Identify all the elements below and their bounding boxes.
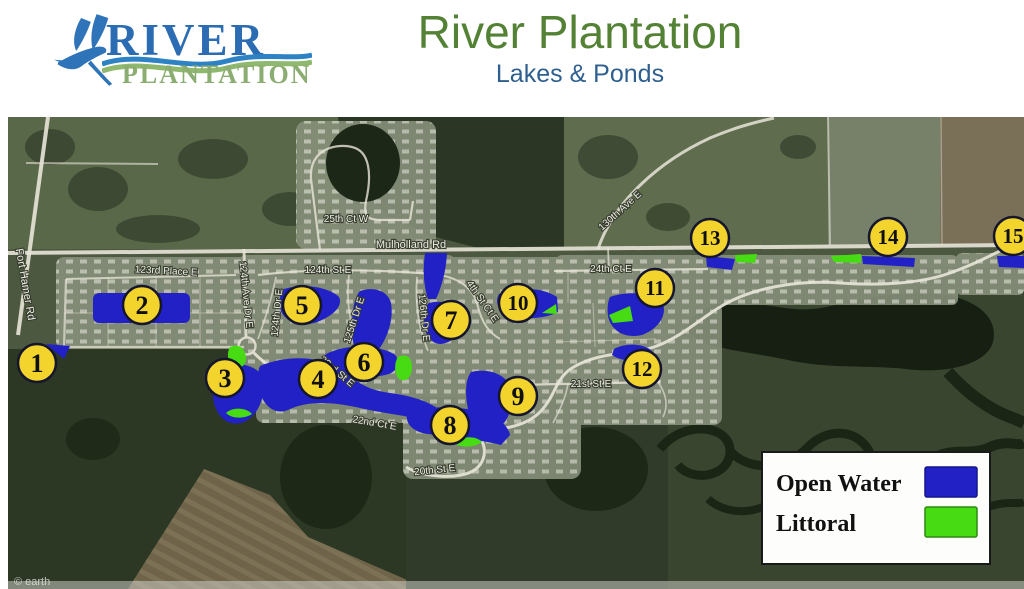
page: RIVER PLANTATION River Plantation Lakes … <box>0 0 1024 589</box>
legend-swatch-littoral <box>925 507 977 537</box>
map-bottom-edge <box>8 581 1024 589</box>
map-canvas: Fort Hamer Rd 123rd Place E 124th Ave Dr… <box>8 117 1024 589</box>
title-block: River Plantation Lakes & Ponds <box>330 6 830 89</box>
marker-number-11: 11 <box>645 276 665 300</box>
street-label-24th-ct-e: 24th Ct E <box>590 264 632 275</box>
map-legend: Open Water Littoral <box>762 452 990 564</box>
marker-number-15: 15 <box>1003 224 1024 248</box>
littoral-13 <box>735 254 757 263</box>
marker-number-3: 3 <box>219 364 232 393</box>
pond-southwest <box>66 418 120 460</box>
lake-15 <box>997 256 1024 268</box>
pond-25th-ct <box>326 124 400 202</box>
logo-text-plantation: PLANTATION <box>122 60 312 90</box>
marker-number-14: 14 <box>878 225 900 249</box>
legend-label-littoral: Littoral <box>776 511 856 537</box>
earth-watermark: © earth <box>14 576 50 588</box>
page-title: River Plantation <box>330 6 830 59</box>
marker-number-5: 5 <box>296 291 309 320</box>
street-label-21st-st-e: 21st St E <box>571 379 612 390</box>
marker-number-10: 10 <box>508 291 529 315</box>
marker-number-7: 7 <box>445 306 458 335</box>
river-plantation-logo: RIVER PLANTATION <box>54 8 304 108</box>
marker-number-6: 6 <box>358 348 371 377</box>
marker-number-9: 9 <box>512 382 525 411</box>
marker-number-1: 1 <box>31 349 44 378</box>
littoral-6 <box>395 355 412 380</box>
header: RIVER PLANTATION River Plantation Lakes … <box>0 0 1024 117</box>
marker-number-13: 13 <box>700 226 721 250</box>
street-label-25th-ct-w: 25th Ct W <box>324 214 369 225</box>
marker-number-12: 12 <box>632 357 653 381</box>
street-label-mulholland-rd: Mulholland Rd <box>376 239 446 251</box>
marker-number-2: 2 <box>136 291 149 320</box>
lakes-and-ponds-map: Fort Hamer Rd 123rd Place E 124th Ave Dr… <box>8 117 1024 589</box>
legend-label-open-water: Open Water <box>776 471 902 497</box>
page-subtitle: Lakes & Ponds <box>330 60 830 89</box>
street-label-124th-st-e: 124th St E <box>305 265 352 276</box>
legend-swatch-open-water <box>925 467 977 497</box>
marker-number-8: 8 <box>444 411 457 440</box>
marker-number-4: 4 <box>312 365 325 394</box>
